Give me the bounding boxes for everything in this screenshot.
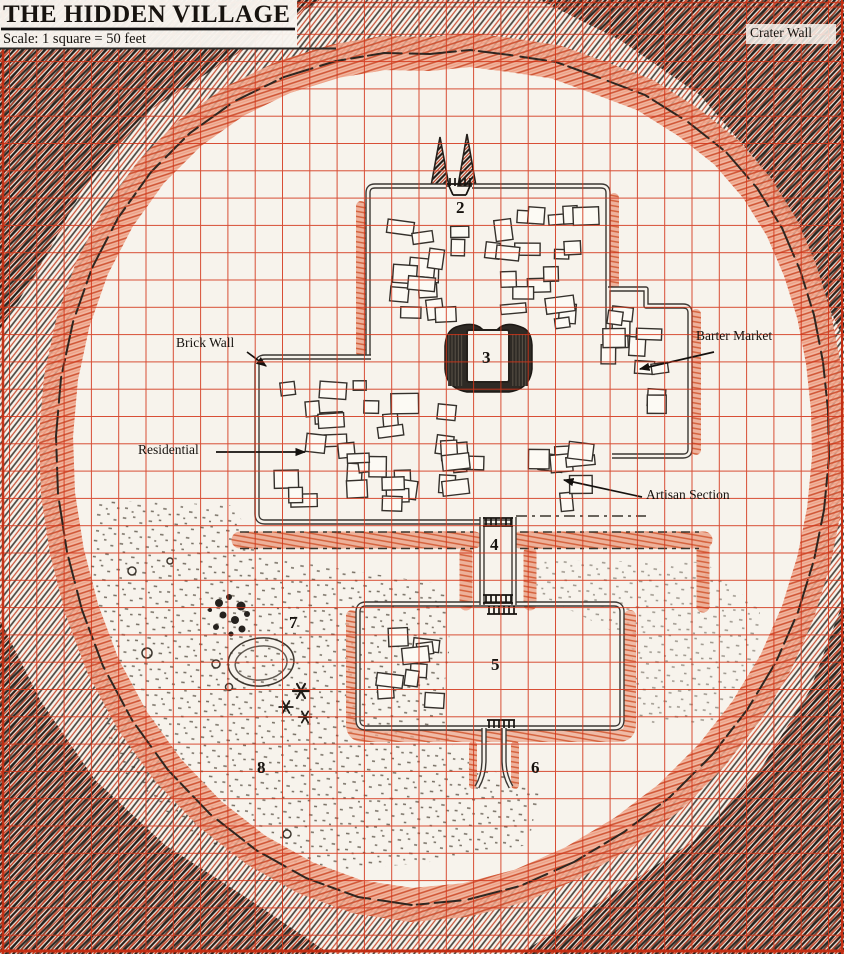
map-canvas: THE HIDDEN VILLAGE Scale: 1 square = 50 … [0, 0, 844, 954]
marker-7: 7 [289, 614, 298, 631]
label-barter-market: Barter Market [696, 329, 772, 343]
label-residential: Residential [138, 443, 199, 457]
label-crater-wall: Crater Wall [750, 26, 812, 40]
marker-5: 5 [491, 656, 500, 673]
marker-8: 8 [257, 759, 266, 776]
page-title: THE HIDDEN VILLAGE [3, 2, 290, 27]
marker-6: 6 [531, 759, 540, 776]
grid-overlay [0, 0, 844, 954]
map-artwork [0, 0, 844, 954]
marker-2: 2 [456, 199, 465, 216]
label-artisan-section: Artisan Section [646, 488, 730, 502]
marker-3: 3 [482, 349, 491, 366]
marker-4: 4 [490, 536, 499, 553]
scale-note: Scale: 1 square = 50 feet [3, 32, 146, 47]
label-brick-wall: Brick Wall [176, 336, 234, 350]
